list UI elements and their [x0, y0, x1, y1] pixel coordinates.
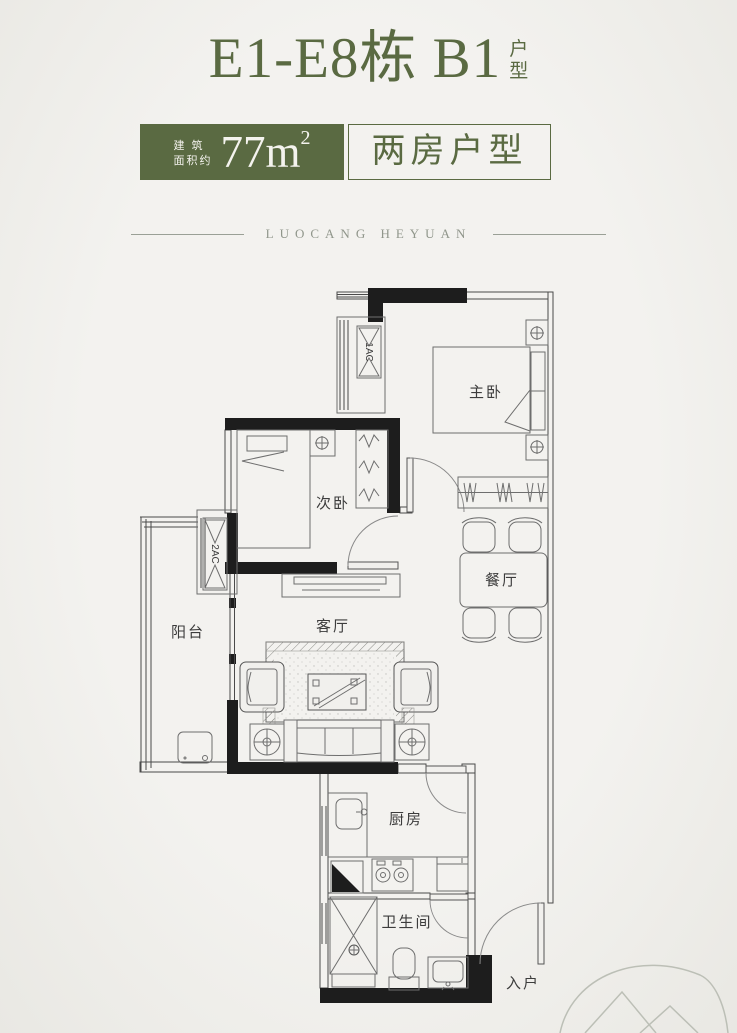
ac2-label: 2AC: [209, 544, 220, 563]
balcony-furniture: [178, 732, 212, 763]
ac1-label: 1AC: [363, 342, 374, 361]
label-balcony: 阳台: [171, 624, 205, 641]
floorplan-page: E1-E8栋 B1 户 型 建 筑 面积约 77m 2 两房户型 LUOCANG…: [0, 0, 737, 1033]
master-bedroom-furniture: [433, 320, 548, 508]
living-room-furniture: [240, 574, 438, 762]
kitchen-door-leaf: [426, 766, 466, 773]
label-bathroom: 卫生间: [381, 914, 432, 931]
label-entrance: 入户: [506, 975, 540, 992]
master-door-leaf: [407, 458, 413, 512]
label-master-bedroom: 主卧: [469, 384, 503, 401]
floorplan-drawing: 1AC 2AC: [0, 0, 737, 1033]
mountain-decoration: [560, 965, 728, 1033]
second-bedroom-furniture: [237, 430, 388, 548]
second-door-leaf: [348, 562, 398, 569]
second-wardrobe: [356, 430, 388, 508]
second-bed: [237, 430, 310, 548]
bathroom-furniture: [330, 897, 468, 990]
washing-machine: [178, 732, 212, 763]
bathroom-door-leaf: [430, 894, 468, 900]
label-kitchen: 厨房: [389, 811, 423, 828]
label-dining-room: 餐厅: [485, 572, 519, 589]
fridge: [437, 857, 468, 891]
bathroom-vanity: [428, 957, 468, 988]
entry-door-leaf: [538, 903, 544, 964]
kitchen-sink: [336, 799, 362, 829]
label-second-bedroom: 次卧: [316, 495, 350, 512]
label-living-room: 客厅: [316, 618, 350, 635]
